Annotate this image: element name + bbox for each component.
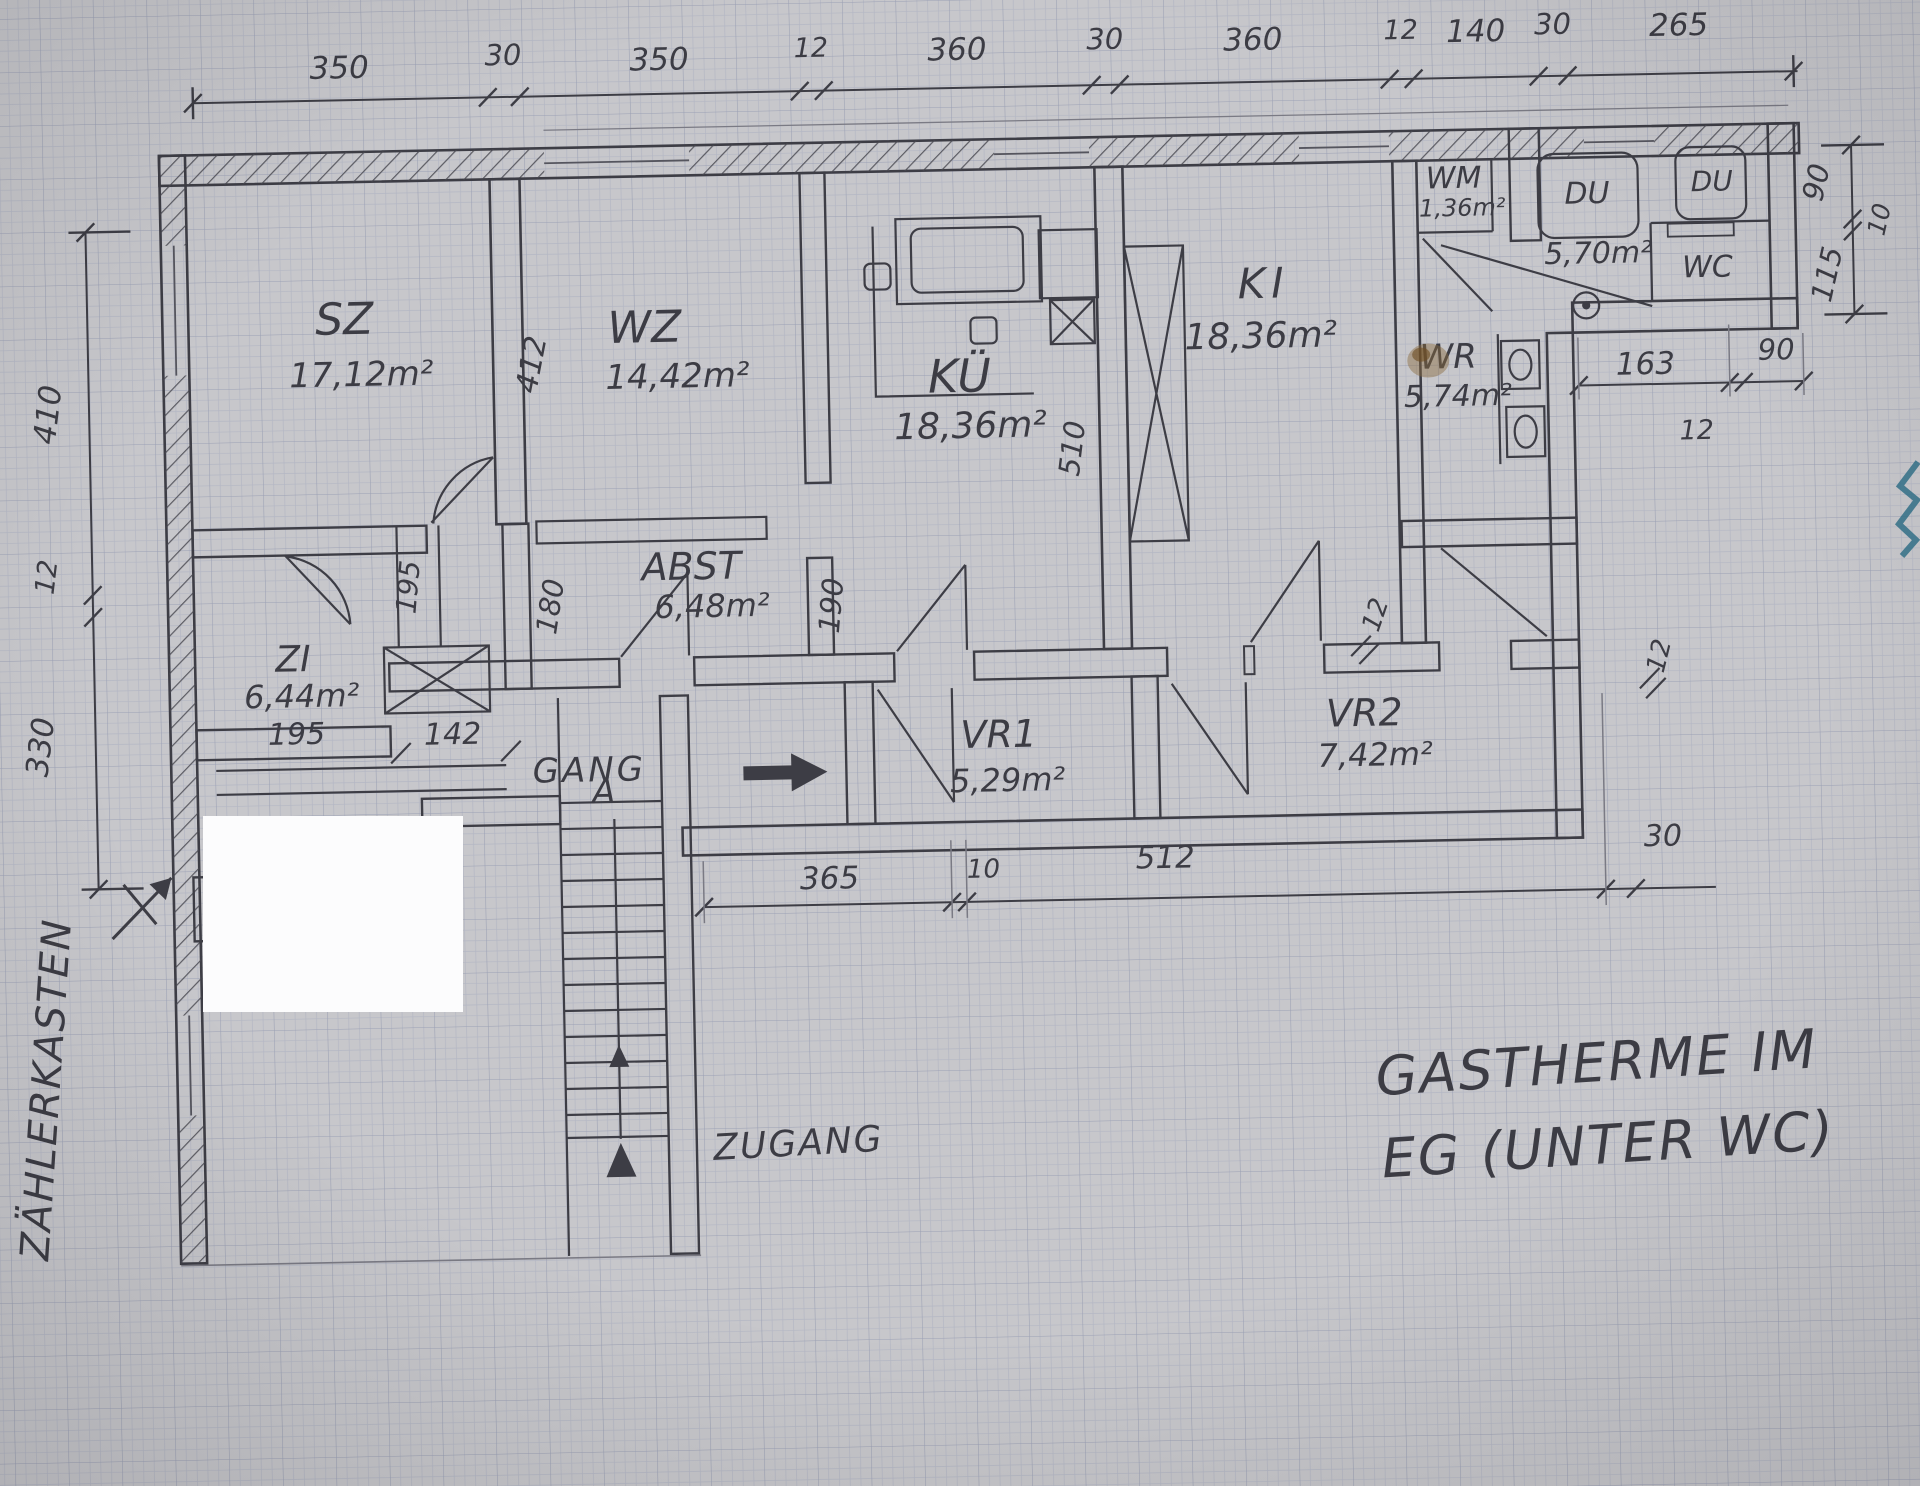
room-wm-label: WM: [1426, 160, 1482, 196]
room-wc-label: WC: [1682, 249, 1733, 285]
room-vr1-label: VR1: [960, 711, 1037, 757]
dim-195-width: 195: [268, 717, 326, 753]
dim-top-30c: 30: [1534, 7, 1572, 42]
room-sz-label: SZ: [315, 294, 375, 346]
dim-142: 142: [424, 717, 482, 753]
room-ki-area: 18,36m²: [1184, 314, 1337, 358]
dim-left-330: 330: [19, 716, 62, 779]
dim-bath-90: 90: [1757, 332, 1795, 367]
dim-bottom-30: 30: [1643, 819, 1682, 855]
room-vr1-area: 5,29m²: [950, 760, 1066, 800]
room-du2-label: DU: [1690, 164, 1733, 198]
room-zi-label: ZI: [274, 639, 311, 681]
redaction-box: [203, 816, 463, 1012]
dim-bath-12: 12: [1679, 415, 1714, 447]
dim-bottom-512: 512: [1135, 839, 1195, 876]
dim-top-350a: 350: [309, 50, 369, 87]
room-ku-label: KÜ: [927, 348, 991, 403]
room-ki-label: KI: [1237, 258, 1290, 308]
dim-top-30a: 30: [484, 38, 522, 73]
room-zi-area: 6,44m²: [244, 676, 360, 716]
dim-top-360b: 360: [1223, 21, 1283, 58]
dim-top-265: 265: [1649, 7, 1709, 44]
room-sz-area: 17,12m²: [289, 354, 434, 397]
room-wz-label: WZ: [607, 302, 683, 354]
dim-top-12a: 12: [793, 33, 828, 65]
floor-plan-photo: { "rooms": { "sz": {"label": "SZ", "area…: [0, 0, 1920, 1486]
dim-top-12b: 12: [1383, 15, 1418, 47]
dim-top-140: 140: [1446, 13, 1506, 50]
dim-bottom-10: 10: [967, 854, 1001, 885]
dim-195-niche: 195: [389, 559, 426, 615]
dim-left-410: 410: [27, 383, 70, 446]
dim-510: 510: [1052, 419, 1092, 478]
room-vr2-area: 7,42m²: [1317, 735, 1433, 775]
room-du1-area: 5,70m²: [1544, 235, 1653, 272]
stair-marker: A: [590, 772, 616, 812]
gang-label: GANG: [532, 749, 646, 791]
dim-top-360a: 360: [927, 31, 987, 68]
room-abst-label: ABST: [638, 543, 744, 589]
room-wm-area: 1,36m²: [1419, 193, 1506, 223]
room-ku-area: 18,36m²: [894, 404, 1047, 448]
dim-top-30b: 30: [1086, 22, 1124, 57]
dim-190: 190: [812, 577, 851, 635]
dim-left-12: 12: [29, 558, 64, 596]
floor-plan-sketch: SZ 17,12m² WZ 14,42m² KÜ 18,36m² KI 18,3…: [0, 0, 1920, 1486]
room-abst-area: 6,48m²: [654, 586, 770, 626]
dim-top-350b: 350: [629, 41, 689, 78]
room-wz-area: 14,42m²: [605, 355, 750, 398]
room-vr2-label: VR2: [1326, 690, 1403, 736]
room-wr-area: 5,74m²: [1404, 378, 1513, 415]
dim-bottom-365: 365: [800, 860, 860, 897]
room-du1-label: DU: [1564, 176, 1610, 212]
dim-bath-163: 163: [1615, 346, 1675, 383]
